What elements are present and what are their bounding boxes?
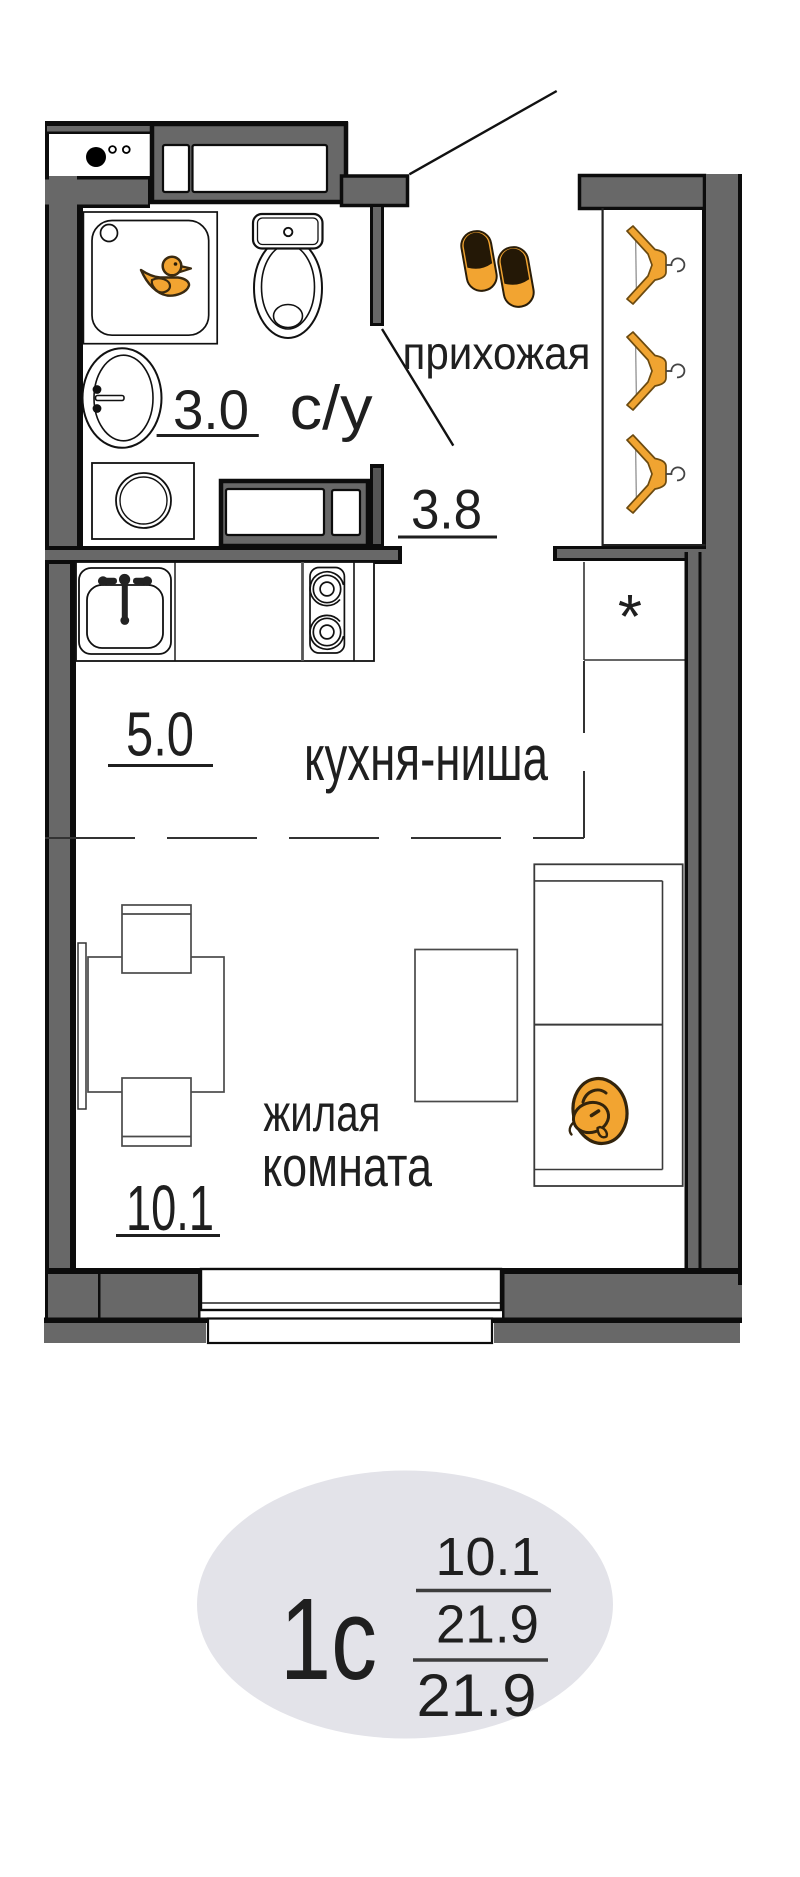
- svg-text:3.0: 3.0: [173, 378, 249, 441]
- svg-text:3.8: 3.8: [411, 477, 482, 540]
- svg-text:10.1: 10.1: [436, 1527, 541, 1587]
- svg-text:с/у: с/у: [290, 374, 373, 443]
- svg-text:1с: 1с: [280, 1574, 377, 1704]
- svg-text:кухня-ниша: кухня-ниша: [304, 722, 548, 794]
- svg-text:10.1: 10.1: [126, 1172, 214, 1244]
- svg-text:прихожая: прихожая: [403, 327, 591, 379]
- svg-text:комната: комната: [262, 1135, 432, 1199]
- svg-text:*: *: [618, 583, 642, 652]
- svg-text:21.9: 21.9: [436, 1595, 539, 1655]
- svg-text:5.0: 5.0: [126, 700, 194, 769]
- svg-text:21.9: 21.9: [417, 1662, 537, 1729]
